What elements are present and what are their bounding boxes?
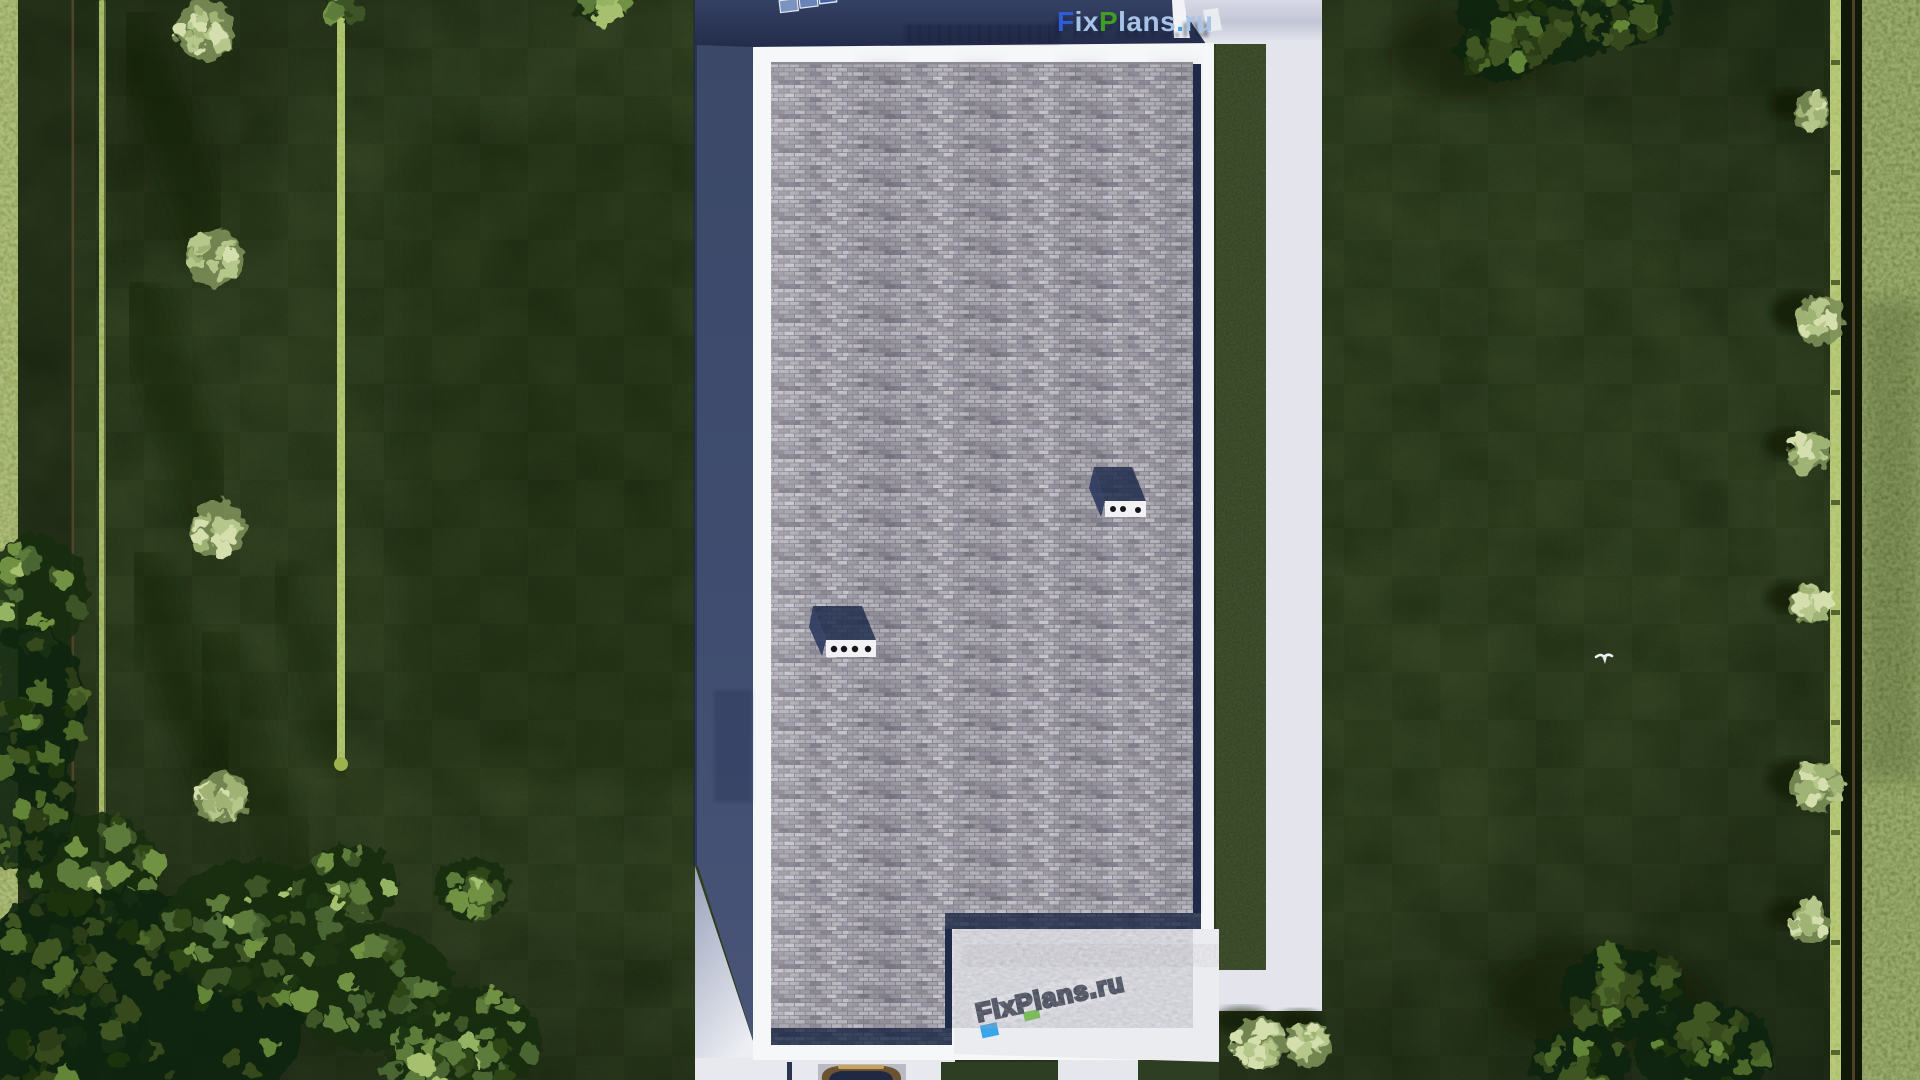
svg-text:FixPlans.ru: FixPlans.ru	[1057, 6, 1213, 37]
